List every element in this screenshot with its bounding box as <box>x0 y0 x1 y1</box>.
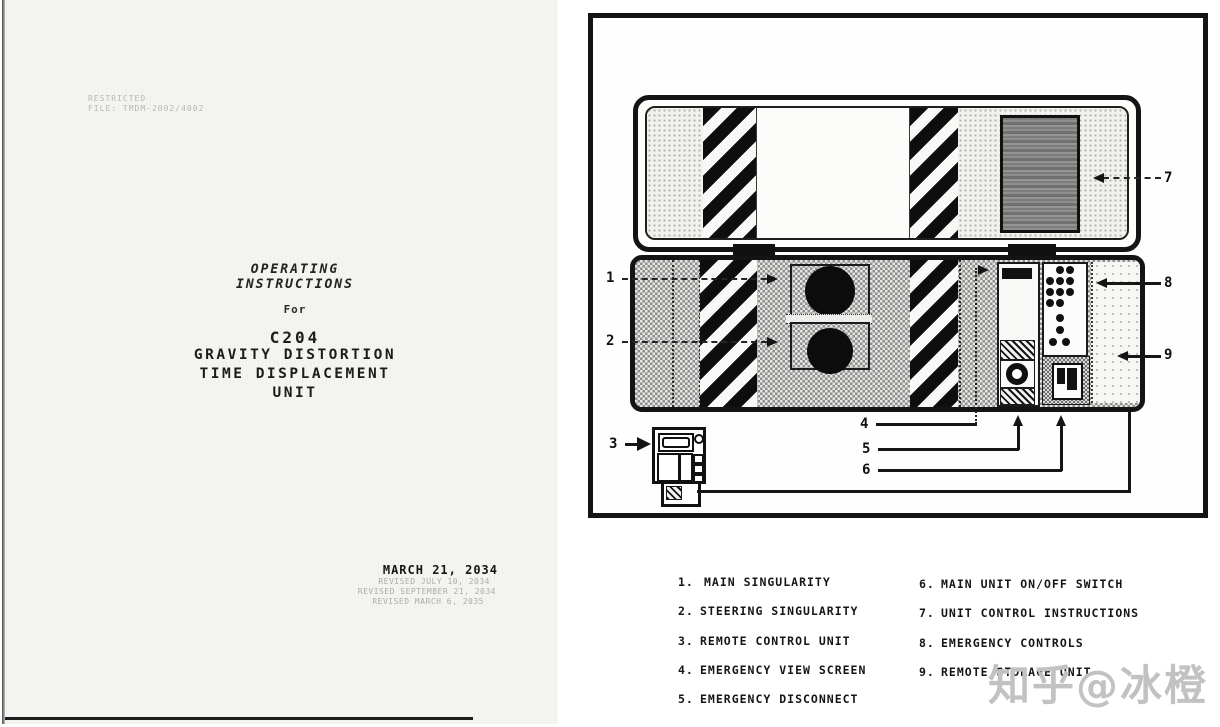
legend-item-label: UNIT CONTROL INSTRUCTIONS <box>941 606 1139 620</box>
body-hazard-stripe-left <box>700 260 757 407</box>
legend-item-label: EMERGENCY DISCONNECT <box>700 692 858 706</box>
remote-cable-horizontal <box>697 490 1131 493</box>
legend-item-number: 3. <box>678 634 694 648</box>
control-button <box>1046 277 1054 285</box>
revision-date-3: REVISED MARCH 6, 2035 <box>292 597 484 607</box>
classification-line: RESTRICTED <box>88 94 204 104</box>
watermark-text: 知乎@冰橙 <box>988 652 1208 713</box>
legend-item-number: 8. <box>919 636 935 650</box>
lid-hazard-stripe-left <box>703 108 756 238</box>
unit-lid <box>633 95 1141 252</box>
control-button <box>1046 288 1054 296</box>
scanned-manual-page: RESTRICTED FILE: TMDM-2002/4002 OPERATIN… <box>0 0 1220 727</box>
callout-7-arrow <box>1093 173 1104 183</box>
emergency-disconnect-panel <box>997 262 1040 407</box>
page-title: C204 <box>150 328 440 347</box>
figure-frame: 1 2 3 4 5 6 7 8 9 <box>588 13 1208 518</box>
callout-5: 5 <box>862 441 870 457</box>
callout-6-line <box>878 469 1062 472</box>
control-button <box>1056 326 1064 334</box>
legend-item-label: EMERGENCY CONTROLS <box>941 636 1084 650</box>
panel-display <box>1000 266 1034 281</box>
callout-4: 4 <box>860 416 868 432</box>
remote-indicator-light <box>694 434 704 444</box>
power-switch-button-left <box>1057 368 1065 384</box>
callout-7-line <box>1103 177 1161 179</box>
callout-5-arrow <box>1013 415 1023 426</box>
control-button <box>1056 314 1064 322</box>
view-screen-callout-line <box>975 268 977 424</box>
callout-2: 2 <box>606 333 614 349</box>
lid-inner-panel <box>645 106 1129 240</box>
issue-date: MARCH 21, 2034 <box>292 563 498 577</box>
callout-2-line <box>622 341 767 343</box>
callout-5-riser <box>1017 426 1020 450</box>
view-screen-arrow <box>978 265 989 275</box>
remote-connector-box <box>661 481 701 507</box>
remote-display-screen <box>662 437 690 448</box>
page-title-line-3: TIME DISPLACEMENT <box>150 366 440 382</box>
callout-6-riser <box>1060 426 1063 471</box>
view-screen-divider <box>959 260 961 407</box>
callout-6-arrow <box>1056 415 1066 426</box>
callout-2-arrow <box>767 337 778 347</box>
legend-item-number: 5. <box>678 692 694 706</box>
callout-8-line <box>1106 282 1161 285</box>
remote-side-button <box>693 464 704 474</box>
date-block: MARCH 21, 2034 REVISED JULY 10, 2034 REV… <box>292 563 498 607</box>
steering-singularity-housing <box>790 322 870 370</box>
legend-item-label: MAIN SINGULARITY <box>704 575 831 589</box>
remote-cable-vertical <box>1128 412 1131 493</box>
callout-3: 3 <box>609 436 617 452</box>
callout-3-arrow <box>637 437 651 451</box>
remote-control-unit <box>652 427 706 484</box>
body-divider-line-1 <box>672 260 674 407</box>
control-button <box>1049 338 1057 346</box>
callout-1: 1 <box>606 270 614 286</box>
control-button <box>1066 277 1074 285</box>
page-bottom-edge-line <box>5 717 473 720</box>
lid-center-panel <box>756 108 910 238</box>
control-button <box>1066 288 1074 296</box>
hinge-tab-right <box>1008 244 1056 256</box>
heading-line-2: INSTRUCTIONS <box>170 277 420 292</box>
callout-7: 7 <box>1164 170 1172 186</box>
control-button <box>1056 299 1064 307</box>
legend-item-number: 9. <box>919 665 935 679</box>
control-button <box>1062 338 1070 346</box>
legend-item-number: 7. <box>919 606 935 620</box>
callout-9: 9 <box>1164 347 1172 363</box>
revision-date-2: REVISED SEPTEMBER 21, 2034 <box>292 587 496 597</box>
callout-5-line <box>878 448 1019 451</box>
remote-keypad-left <box>657 453 680 482</box>
revision-date-1: REVISED JULY 10, 2034 <box>292 577 490 587</box>
callout-8: 8 <box>1164 275 1172 291</box>
disconnect-knob <box>1006 363 1028 385</box>
hatch-plate-bottom <box>1000 388 1035 405</box>
callout-6: 6 <box>862 462 870 478</box>
power-switch-button-right <box>1067 368 1077 390</box>
callout-4-line <box>876 423 977 426</box>
control-button <box>1056 277 1064 285</box>
remote-side-button <box>693 454 704 464</box>
legend-item-number: 4. <box>678 663 694 677</box>
body-hazard-stripe-right <box>910 260 958 407</box>
main-singularity-sphere <box>805 266 855 316</box>
heading-line-1: OPERATING <box>170 262 420 277</box>
control-button <box>1056 266 1064 274</box>
legend-item-label: MAIN UNIT ON/OFF SWITCH <box>941 577 1123 591</box>
for-label: For <box>170 303 420 316</box>
remote-keypad-right <box>679 453 693 482</box>
legend-item-number: 6. <box>919 577 935 591</box>
hinge-tab-left <box>733 244 775 256</box>
callout-9-line <box>1127 355 1161 358</box>
control-button <box>1056 288 1064 296</box>
hatch-plate-top <box>1000 340 1035 360</box>
legend-item-label: STEERING SINGULARITY <box>700 604 858 618</box>
legend-item-label: REMOTE CONTROL UNIT <box>700 634 851 648</box>
page-left-edge-shadow <box>2 0 5 724</box>
page-title-line-2: GRAVITY DISTORTION <box>150 347 440 363</box>
callout-1-line <box>622 278 767 280</box>
callout-1-arrow <box>767 274 778 284</box>
legend-item-number: 2. <box>678 604 694 618</box>
classification-block: RESTRICTED FILE: TMDM-2002/4002 <box>88 94 204 114</box>
power-switch-box <box>1052 363 1083 400</box>
remote-connector-hatch <box>666 486 682 500</box>
callout-9-arrow <box>1117 351 1128 361</box>
lid-left-panel <box>647 108 703 238</box>
cover-page: RESTRICTED FILE: TMDM-2002/4002 OPERATIN… <box>2 0 558 724</box>
main-singularity-housing <box>790 264 870 316</box>
emergency-controls-panel <box>1042 262 1088 357</box>
callout-8-arrow <box>1096 278 1107 288</box>
lid-hazard-stripe-right <box>910 108 958 238</box>
legend-item-number: 1. <box>678 575 694 589</box>
power-switch-housing <box>1042 356 1090 405</box>
legend-item-label: EMERGENCY VIEW SCREEN <box>700 663 866 677</box>
disconnect-knob-box <box>1000 360 1035 388</box>
remote-display <box>658 433 694 452</box>
unit-control-instructions-screen <box>1000 115 1080 233</box>
control-button <box>1066 266 1074 274</box>
steering-singularity-sphere <box>807 328 853 374</box>
control-button <box>1046 299 1054 307</box>
page-title-line-4: UNIT <box>150 385 440 401</box>
file-number-line: FILE: TMDM-2002/4002 <box>88 104 204 114</box>
